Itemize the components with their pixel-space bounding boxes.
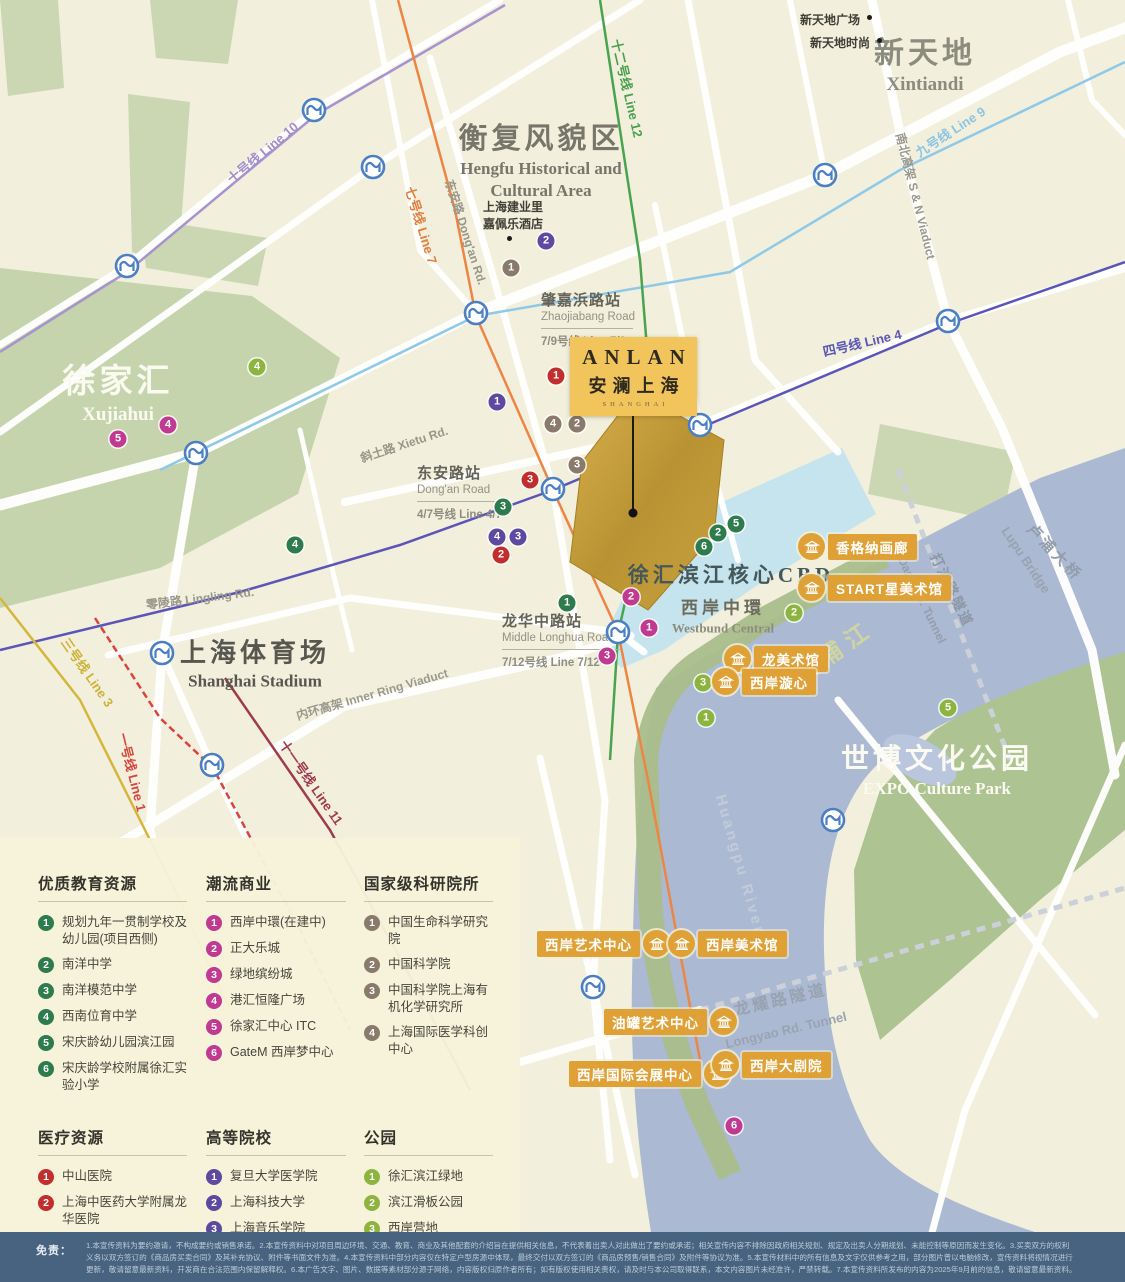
legend-item-label: 中国科学院 bbox=[388, 956, 451, 973]
legend-item-label: 规划九年一贯制学校及幼儿园(项目西侧) bbox=[62, 914, 190, 947]
project-logo: ANLAN 安澜上海 SHANGHAI bbox=[570, 337, 697, 416]
legend-section-title: 国家级科研院所 bbox=[364, 872, 504, 894]
legend-section-divider bbox=[364, 901, 493, 902]
legend-item-badge: 5 bbox=[38, 1035, 54, 1051]
legend-section-divider bbox=[38, 901, 187, 902]
legend-item-badge: 1 bbox=[364, 1169, 380, 1185]
legend-item: 3南洋模范中学 bbox=[38, 982, 200, 999]
legend-item-badge: 4 bbox=[364, 1025, 380, 1041]
legend-section-divider bbox=[364, 1155, 493, 1156]
legend-item-label: 宋庆龄学校附属徐汇实验小学 bbox=[62, 1060, 190, 1093]
legend-section-divider bbox=[38, 1155, 187, 1156]
legend-item-badge: 3 bbox=[206, 967, 222, 983]
legend-item: 2南洋中学 bbox=[38, 956, 200, 973]
legend-item-label: 上海中医药大学附属龙华医院 bbox=[62, 1194, 190, 1227]
legend-panel: 优质教育资源1规划九年一贯制学校及幼儿园(项目西侧)2南洋中学3南洋模范中学4西… bbox=[0, 838, 520, 1232]
disclaimer-bar: 免责： 1.本宣传资料为要约邀请，不构成要约或销售承诺。2.本宣传资料中对项目周… bbox=[0, 1232, 1125, 1282]
legend-item-badge: 6 bbox=[38, 1061, 54, 1077]
legend-item-badge: 1 bbox=[364, 915, 380, 931]
legend-item-label: 南洋模范中学 bbox=[62, 982, 137, 999]
legend-item-label: 西南位育中学 bbox=[62, 1008, 137, 1025]
legend-item: 6GateM 西岸梦中心 bbox=[206, 1044, 358, 1061]
legend-section-title: 医疗资源 bbox=[38, 1126, 200, 1148]
legend-item-badge: 1 bbox=[206, 915, 222, 931]
legend-item-badge: 5 bbox=[206, 1019, 222, 1035]
legend-section-title: 优质教育资源 bbox=[38, 872, 200, 894]
project-logo-sub: SHANGHAI bbox=[603, 401, 669, 408]
legend-item-badge: 2 bbox=[364, 957, 380, 973]
project-logo-en: ANLAN bbox=[582, 345, 692, 370]
disclaimer-line: 义务以双方签订的《商品房买卖合同》及其补充协议、附件等书面文件为准。4.本宣传资… bbox=[86, 1252, 1077, 1264]
legend-section-research: 国家级科研院所1中国生命科学研究院2中国科学院3中国科学院上海有机化学研究所4上… bbox=[364, 872, 504, 1102]
legend-item: 1复旦大学医学院 bbox=[206, 1168, 358, 1185]
disclaimer-text: 1.本宣传资料为要约邀请，不构成要约或销售承诺。2.本宣传资料中对项目周边环境、… bbox=[86, 1240, 1077, 1276]
legend-item-label: 上海科技大学 bbox=[230, 1194, 305, 1211]
legend-item-badge: 1 bbox=[38, 1169, 54, 1185]
legend-item-label: 上海国际医学科创中心 bbox=[388, 1024, 494, 1057]
legend-item: 4上海国际医学科创中心 bbox=[364, 1024, 504, 1057]
legend-item: 1徐汇滨江绿地 bbox=[364, 1168, 504, 1185]
legend-item-label: 南洋中学 bbox=[62, 956, 112, 973]
project-logo-cn: 安澜上海 bbox=[589, 372, 685, 398]
legend-item-label: 中国生命科学研究院 bbox=[388, 914, 494, 947]
legend-item-badge: 3 bbox=[364, 983, 380, 999]
legend-item: 2中国科学院 bbox=[364, 956, 504, 973]
legend-item-badge: 6 bbox=[206, 1045, 222, 1061]
legend-section-commerce: 潮流商业1西岸中環(在建中)2正大乐城3绿地缤纷城4港汇恒隆广场5徐家汇中心 I… bbox=[206, 872, 358, 1102]
legend-item: 2正大乐城 bbox=[206, 940, 358, 957]
legend-item: 1西岸中環(在建中) bbox=[206, 914, 358, 931]
legend-item: 3绿地缤纷城 bbox=[206, 966, 358, 983]
legend-item: 1中国生命科学研究院 bbox=[364, 914, 504, 947]
legend-item-badge: 2 bbox=[206, 941, 222, 957]
legend-item-label: 正大乐城 bbox=[230, 940, 280, 957]
legend-item: 1规划九年一贯制学校及幼儿园(项目西侧) bbox=[38, 914, 200, 947]
legend-item-label: 中山医院 bbox=[62, 1168, 112, 1185]
legend-item: 2上海中医药大学附属龙华医院 bbox=[38, 1194, 200, 1227]
disclaimer-label: 免责： bbox=[36, 1242, 72, 1258]
legend-item: 5徐家汇中心 ITC bbox=[206, 1018, 358, 1035]
legend-item: 2上海科技大学 bbox=[206, 1194, 358, 1211]
legend-item-badge: 4 bbox=[38, 1009, 54, 1025]
legend-item-badge: 3 bbox=[38, 983, 54, 999]
legend-item-badge: 4 bbox=[206, 993, 222, 1009]
legend-item-label: 西岸中環(在建中) bbox=[230, 914, 326, 931]
legend-item: 1中山医院 bbox=[38, 1168, 200, 1185]
legend-item-badge: 1 bbox=[206, 1169, 222, 1185]
legend-item-badge: 2 bbox=[206, 1195, 222, 1211]
legend-section-divider bbox=[206, 1155, 346, 1156]
legend-item: 3中国科学院上海有机化学研究所 bbox=[364, 982, 504, 1015]
legend-section-divider bbox=[206, 901, 346, 902]
legend-item-label: 中国科学院上海有机化学研究所 bbox=[388, 982, 494, 1015]
legend-item-badge: 2 bbox=[364, 1195, 380, 1211]
legend-item-label: GateM 西岸梦中心 bbox=[230, 1044, 334, 1061]
legend-section-education: 优质教育资源1规划九年一贯制学校及幼儿园(项目西侧)2南洋中学3南洋模范中学4西… bbox=[38, 872, 200, 1102]
legend-item: 4港汇恒隆广场 bbox=[206, 992, 358, 1009]
legend-item-label: 宋庆龄幼儿园滨江园 bbox=[62, 1034, 175, 1051]
legend-item-badge: 1 bbox=[38, 915, 54, 931]
legend-item: 2滨江滑板公园 bbox=[364, 1194, 504, 1211]
legend-section-title: 公园 bbox=[364, 1126, 504, 1148]
legend-item-label: 徐汇滨江绿地 bbox=[388, 1168, 463, 1185]
legend-item: 5宋庆龄幼儿园滨江园 bbox=[38, 1034, 200, 1051]
legend-item-label: 徐家汇中心 ITC bbox=[230, 1018, 316, 1035]
disclaimer-line: 1.本宣传资料为要约邀请，不构成要约或销售承诺。2.本宣传资料中对项目周边环境、… bbox=[86, 1240, 1077, 1252]
map-poster: 新天地Xintiandi衡复风貌区Hengfu Historical andCu… bbox=[0, 0, 1125, 1282]
legend-item-label: 滨江滑板公园 bbox=[388, 1194, 463, 1211]
legend-item-badge: 2 bbox=[38, 1195, 54, 1211]
legend-item: 4西南位育中学 bbox=[38, 1008, 200, 1025]
disclaimer-line: 更新，敬请留意最新资料，开发商在合法范围内保留解释权。6.本广告文字、图片、数据… bbox=[86, 1264, 1077, 1276]
legend-item: 6宋庆龄学校附属徐汇实验小学 bbox=[38, 1060, 200, 1093]
legend-item-label: 港汇恒隆广场 bbox=[230, 992, 305, 1009]
legend-item-label: 绿地缤纷城 bbox=[230, 966, 293, 983]
legend-section-title: 高等院校 bbox=[206, 1126, 358, 1148]
legend-section-title: 潮流商业 bbox=[206, 872, 358, 894]
legend-item-badge: 2 bbox=[38, 957, 54, 973]
legend-item-label: 复旦大学医学院 bbox=[230, 1168, 318, 1185]
